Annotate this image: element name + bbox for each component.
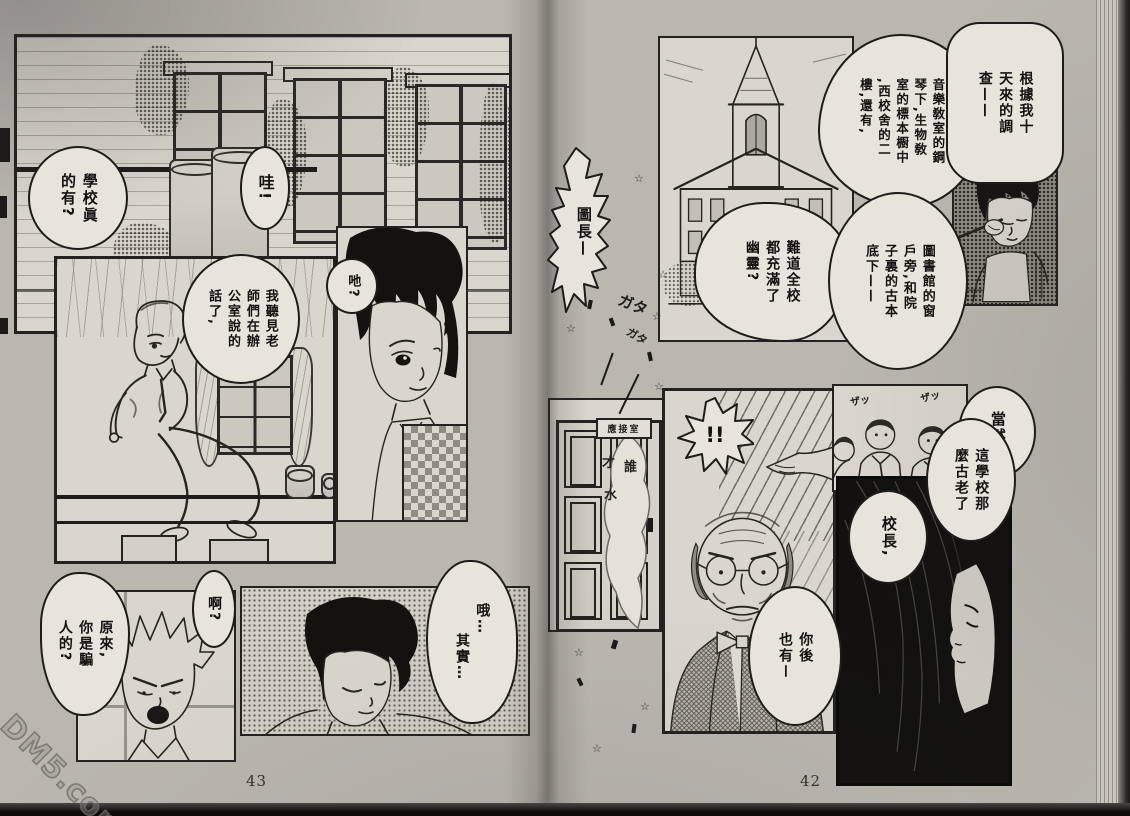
star-decoration: ☆ [566, 322, 576, 335]
bubble-text: 學校眞的有? [56, 173, 100, 224]
bubble-text: 圖長— [572, 207, 594, 258]
text-column: 難道全校 [782, 240, 802, 304]
bubble-text: 哇! [253, 174, 276, 201]
ink-speck [609, 318, 615, 327]
stool [121, 535, 177, 564]
speech-bubble-ah: 啊? [192, 570, 236, 648]
star-decoration: ☆ [654, 380, 664, 393]
speech-bubble-principal-call: 校長, [848, 490, 928, 584]
ivy-foliage [479, 83, 512, 243]
text-column: ,西校舍的二 [874, 78, 892, 165]
small-bottle [321, 473, 336, 499]
text-column: 人的? [55, 620, 75, 668]
text-column: 根據我十 [1015, 71, 1035, 135]
speech-bubble-heard-teachers: 我聽見老師們在辦公室說的話了, [182, 254, 300, 384]
page-number-right: 42 [800, 772, 821, 790]
text-column: 哦… [472, 603, 492, 681]
star-decoration: ☆ [592, 742, 602, 755]
star-decoration: ☆ [652, 310, 662, 323]
text-column: 這學校那 [971, 448, 991, 512]
burst-bubble-bang: !! [676, 396, 754, 476]
speech-bubble-wow: 哇! [240, 146, 290, 230]
bang-text: !! [705, 423, 724, 447]
text-column: 都充滿了 [762, 240, 782, 304]
star-decoration: ☆ [634, 172, 644, 185]
bubble-text: 這學校那麼古老了 [951, 448, 992, 512]
speech-bubble-school-really: 學校眞的有? [28, 146, 128, 250]
text-column: 你是騙 [75, 620, 95, 668]
text-column: 我聽見老 [260, 289, 279, 349]
ink-speck [647, 352, 653, 362]
book-page-edges [1096, 0, 1118, 816]
star-decoration: ☆ [574, 646, 584, 659]
sfx-gata-small: ガタ [623, 324, 650, 349]
bubble-text: 啊? [204, 596, 224, 622]
text-column: 原來, [95, 620, 115, 668]
background-shadow-bottom [0, 803, 1130, 816]
checker-pattern [402, 424, 468, 522]
text-column: 底下—— [860, 244, 879, 319]
text-column: 麼古老了 [951, 448, 971, 512]
text-column: 查—— [975, 71, 995, 135]
burst-bubble-director: 圖長— [546, 146, 620, 318]
bubble-text: 原來,你是騙人的? [55, 620, 116, 668]
text-column: 圖書館的窗 [917, 244, 936, 319]
ink-speck [0, 196, 7, 218]
bubble-text: 哦…其實… [452, 603, 493, 681]
background-shadow-right [1118, 0, 1130, 816]
bubble-text: 校長, [877, 516, 899, 558]
text-column: 音樂敎室的鋼 [928, 78, 946, 165]
ink-speck [611, 639, 619, 649]
text-column: 學校眞 [78, 173, 100, 224]
star-decoration: ☆ [640, 700, 650, 713]
ink-speck [0, 128, 10, 162]
door-sign-plaque: 應接室 [596, 418, 652, 439]
bubble-text: 你後也有ー [775, 632, 816, 680]
bubble-text: 根據我十天來的調查—— [975, 71, 1036, 135]
text-column: 室的標本櫉中 [892, 78, 910, 165]
text-column: 幽靈? [742, 240, 762, 304]
text-column: 話了, [203, 289, 222, 349]
sfx-gata: ガタ [615, 289, 651, 320]
door-sign-text: 應接室 [607, 422, 640, 435]
text-column: 琴下,生物敎 [910, 78, 928, 165]
ink-speck [576, 678, 583, 687]
ghost-whisper-char: 誰 [624, 456, 637, 475]
thought-bubble-ghosts: 難道全校都充滿了幽靈? [694, 202, 850, 342]
text-column: 也有ー [775, 632, 795, 680]
text-column: 戶旁,和院 [898, 244, 917, 319]
ink-speck [0, 318, 8, 334]
bench-edge [57, 521, 336, 524]
bubble-text: 我聽見老師們在辦公室說的話了, [203, 289, 278, 349]
bubble-text: 音樂敎室的鋼琴下,生物敎室的標本櫉中,西校舍的二樓,還有, [856, 78, 947, 165]
text-column: 的有? [56, 173, 78, 224]
speed-stroke [600, 353, 614, 386]
text-column: 樓,還有, [856, 78, 874, 165]
bubble-text: 吔? [343, 274, 362, 299]
speech-bubble-old-school: 這學校那麼古老了 [926, 418, 1016, 542]
text-column: 天來的調 [995, 71, 1015, 135]
text-column: 公室說的 [222, 289, 241, 349]
beaker [285, 465, 315, 499]
ghost-whisper-char: 水 [604, 484, 617, 503]
window [293, 78, 387, 244]
speech-bubble-eh: 吔? [326, 258, 378, 314]
ghost-whisper-char: 才 [602, 452, 615, 471]
speech-bubble-actually: 哦…其實… [426, 560, 518, 724]
text-column: 子裏的古本 [879, 244, 898, 319]
text-column: 你後 [795, 632, 815, 680]
bubble-text: 圖書館的窗戶旁,和院子裏的古本底下—— [860, 244, 935, 319]
speech-bubble-locations-b: 圖書館的窗戶旁,和院子裏的古本底下—— [828, 192, 968, 370]
star-decoration: ☆ [658, 268, 668, 281]
text-column: 師們在辦 [241, 289, 260, 349]
manga-spread-scan: 學校眞的有? 哇! [0, 0, 1130, 816]
bubble-text: 難道全校都充滿了幽靈? [742, 240, 803, 304]
speech-bubble-research: 根據我十天來的調查—— [946, 22, 1064, 184]
stool [209, 539, 269, 564]
text-column: 其實… [452, 603, 472, 681]
ink-speck [631, 724, 636, 733]
speech-bubble-you-too: 你後也有ー [748, 586, 842, 726]
page-number-left: 43 [246, 772, 267, 790]
